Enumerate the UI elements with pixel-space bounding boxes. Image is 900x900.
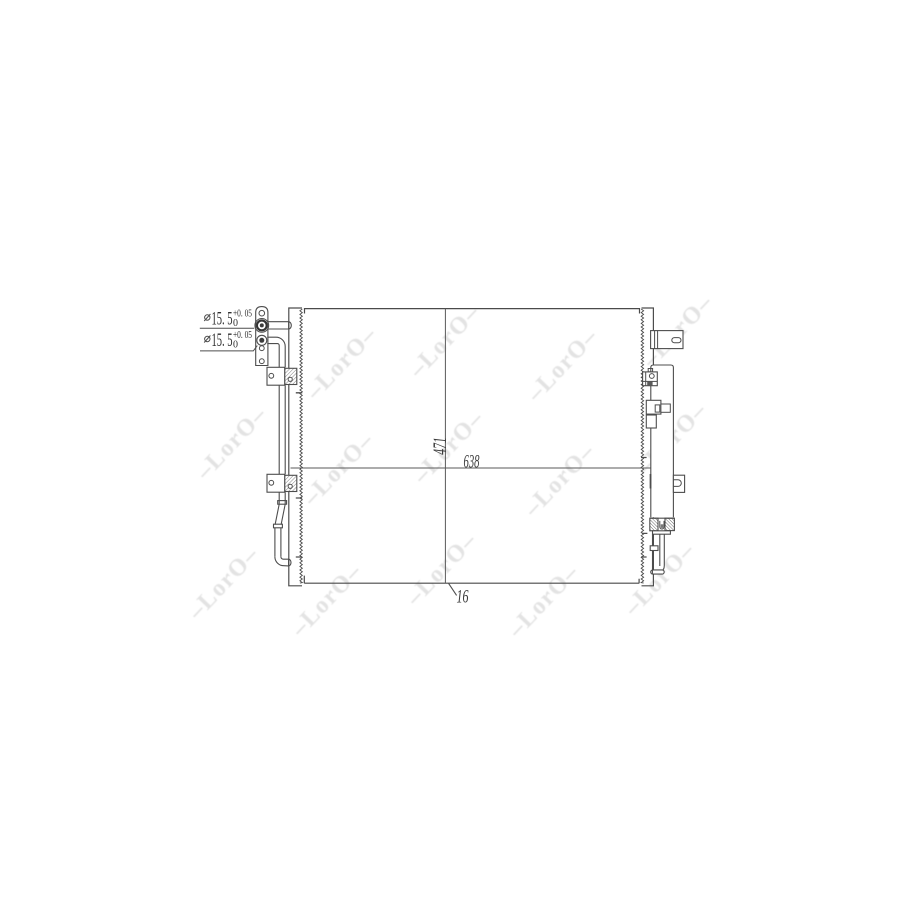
svg-text:–LorO–: –LorO– — [522, 323, 604, 407]
svg-text:0: 0 — [233, 340, 238, 351]
svg-text:638: 638 — [464, 451, 480, 472]
svg-text:–LorO–: –LorO– — [298, 427, 380, 511]
svg-text:471: 471 — [430, 437, 451, 455]
svg-text:–LorO–: –LorO– — [191, 401, 273, 485]
svg-text:–LorO–: –LorO– — [404, 299, 486, 383]
svg-text:16: 16 — [457, 586, 469, 607]
svg-text:15. 5: 15. 5 — [212, 309, 233, 330]
svg-text:–LorO–: –LorO– — [183, 541, 265, 625]
svg-text:15. 5: 15. 5 — [212, 330, 233, 351]
svg-text:0: 0 — [233, 318, 238, 329]
svg-text:–LorO–: –LorO– — [286, 558, 368, 642]
svg-text:–LorO–: –LorO– — [503, 559, 585, 643]
svg-text:–LorO–: –LorO– — [401, 527, 483, 611]
svg-text:–LorO–: –LorO– — [519, 438, 601, 522]
svg-text:–LorO–: –LorO– — [301, 321, 383, 405]
